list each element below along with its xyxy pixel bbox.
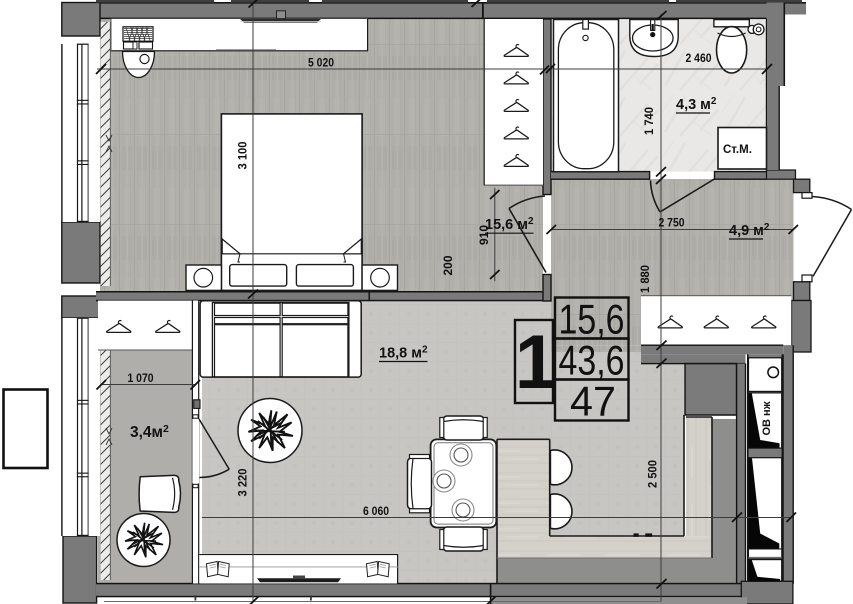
svg-text:15,6 м2: 15,6 м2	[485, 216, 534, 233]
svg-text:1 740: 1 740	[644, 107, 656, 135]
svg-text:200: 200	[443, 256, 455, 276]
svg-text:2 500: 2 500	[648, 460, 660, 488]
svg-text:ОВ нж: ОВ нж	[761, 401, 773, 435]
svg-text:3 100: 3 100	[238, 142, 250, 170]
svg-text:5 020: 5 020	[308, 58, 334, 70]
svg-text:4,9 м2: 4,9 м2	[729, 222, 770, 239]
svg-text:3 220: 3 220	[238, 469, 250, 497]
svg-text:47: 47	[570, 378, 616, 425]
svg-text:15,6: 15,6	[559, 296, 625, 343]
svg-text:2 750: 2 750	[659, 218, 685, 230]
svg-text:18,8 м2: 18,8 м2	[379, 345, 428, 362]
svg-text:4,3 м2: 4,3 м2	[676, 96, 717, 113]
svg-text:43,6: 43,6	[559, 337, 625, 384]
svg-text:1: 1	[515, 320, 557, 405]
svg-text:2 460: 2 460	[686, 53, 712, 65]
svg-text:Ст.М.: Ст.М.	[723, 144, 752, 156]
svg-text:1 070: 1 070	[128, 373, 154, 385]
svg-text:6 060: 6 060	[363, 506, 389, 518]
svg-text:1 880: 1 880	[640, 265, 652, 293]
